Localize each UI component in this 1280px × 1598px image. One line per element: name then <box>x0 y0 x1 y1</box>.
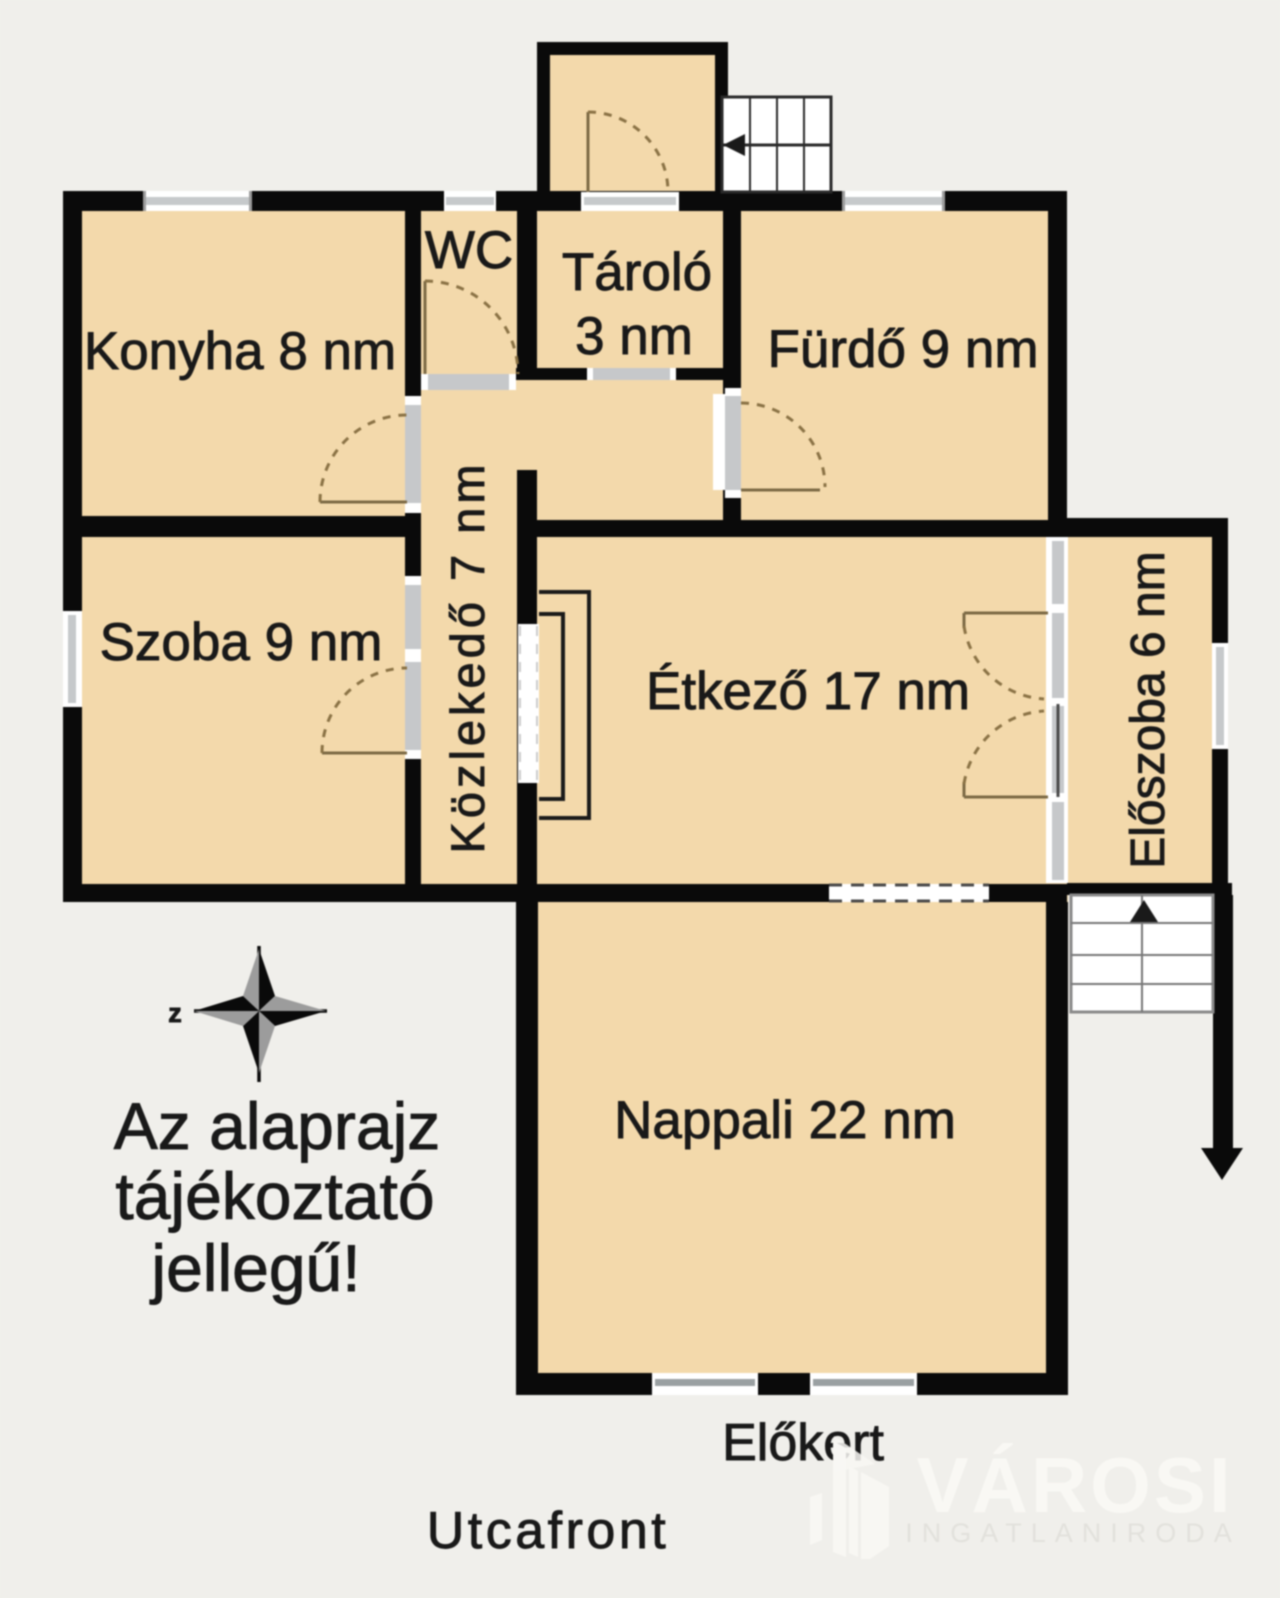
svg-text:WC: WC <box>425 221 513 280</box>
svg-text:VÁROSI: VÁROSI <box>916 1441 1233 1529</box>
svg-text:Étkező 17 nm: Étkező 17 nm <box>646 662 970 721</box>
svg-text:jellegű!: jellegű! <box>149 1231 360 1305</box>
svg-text:z: z <box>168 998 182 1028</box>
svg-text:Előszoba 6 nm: Előszoba 6 nm <box>1122 551 1175 869</box>
svg-text:3 nm: 3 nm <box>575 307 693 366</box>
svg-text:INGATLANIRODA: INGATLANIRODA <box>905 1518 1241 1548</box>
svg-text:Közlekedő 7 nm: Közlekedő 7 nm <box>441 460 494 853</box>
svg-text:tájékoztató: tájékoztató <box>115 1159 434 1233</box>
svg-text:Tároló: Tároló <box>562 243 712 302</box>
svg-text:Szoba 9 nm: Szoba 9 nm <box>100 613 383 672</box>
svg-text:Az alaprajz: Az alaprajz <box>114 1089 441 1163</box>
svg-text:Fürdő 9 nm: Fürdő 9 nm <box>767 320 1038 379</box>
svg-text:Konyha 8 nm: Konyha 8 nm <box>84 322 396 381</box>
svg-text:Utcafront: Utcafront <box>427 1502 669 1560</box>
svg-text:Nappali 22 nm: Nappali 22 nm <box>614 1091 956 1150</box>
